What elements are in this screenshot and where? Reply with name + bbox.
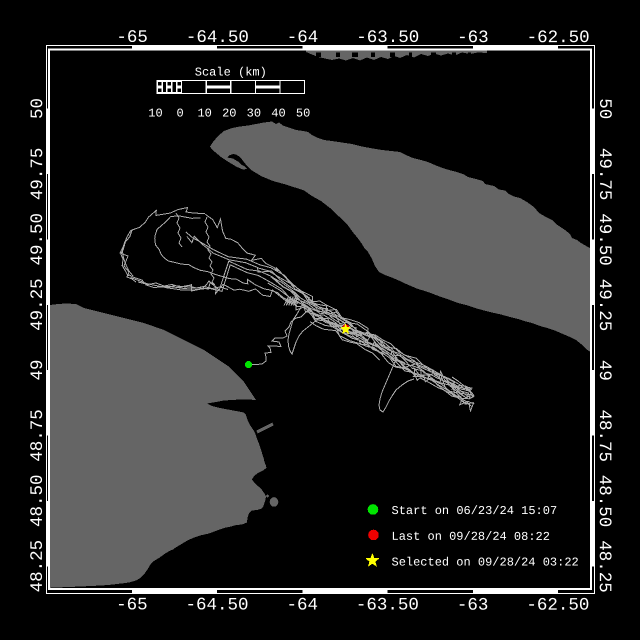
- svg-text:10: 10: [148, 106, 162, 120]
- svg-text:10: 10: [197, 106, 211, 120]
- svg-text:Selected on 09/28/24 03:22: Selected on 09/28/24 03:22: [391, 555, 578, 569]
- svg-text:49.50: 49.50: [28, 213, 48, 266]
- svg-text:49.50: 49.50: [594, 213, 614, 266]
- svg-text:-65: -65: [116, 595, 148, 615]
- svg-text:49: 49: [594, 360, 614, 381]
- svg-text:40: 40: [271, 107, 285, 121]
- svg-text:0: 0: [176, 106, 183, 120]
- svg-text:49: 49: [28, 360, 48, 381]
- svg-text:50: 50: [28, 98, 48, 119]
- svg-text:-65: -65: [116, 28, 148, 48]
- svg-text:48.75: 48.75: [594, 409, 614, 462]
- svg-text:-64: -64: [287, 28, 319, 48]
- svg-text:48.50: 48.50: [28, 474, 48, 527]
- svg-text:30: 30: [247, 107, 261, 121]
- svg-text:-63.50: -63.50: [356, 28, 419, 48]
- svg-text:48.25: 48.25: [594, 540, 614, 593]
- svg-text:48.50: 48.50: [594, 475, 614, 528]
- svg-text:49.25: 49.25: [594, 279, 614, 332]
- svg-text:Scale (km): Scale (km): [195, 65, 267, 79]
- svg-text:49.25: 49.25: [28, 278, 48, 331]
- svg-text:48.75: 48.75: [28, 409, 48, 462]
- svg-text:-63: -63: [457, 596, 489, 616]
- svg-text:50: 50: [296, 107, 310, 121]
- svg-text:Last on 09/28/24 08:22: Last on 09/28/24 08:22: [391, 530, 549, 544]
- svg-text:49.75: 49.75: [28, 148, 48, 201]
- svg-text:49.75: 49.75: [594, 148, 614, 201]
- svg-text:-63.50: -63.50: [356, 596, 419, 616]
- svg-text:-62.50: -62.50: [526, 596, 589, 616]
- svg-text:-64.50: -64.50: [186, 595, 249, 615]
- svg-text:48.25: 48.25: [28, 540, 48, 593]
- svg-text:-63: -63: [457, 28, 489, 48]
- svg-text:-64.50: -64.50: [186, 28, 249, 48]
- svg-text:-62.50: -62.50: [527, 28, 590, 48]
- svg-text:-64: -64: [286, 595, 318, 615]
- svg-text:Start on 06/23/24 15:07: Start on 06/23/24 15:07: [392, 504, 558, 518]
- svg-text:50: 50: [594, 98, 614, 119]
- svg-text:20: 20: [222, 106, 236, 120]
